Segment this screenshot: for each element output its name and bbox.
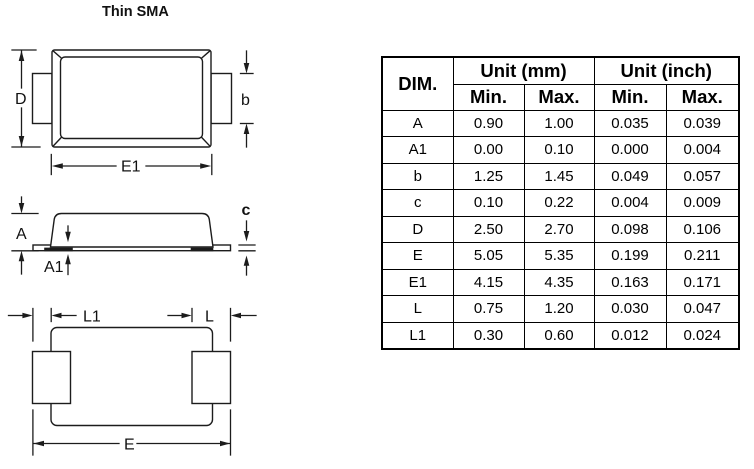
svg-text:A: A [16, 226, 27, 243]
svg-text:L1: L1 [83, 309, 101, 326]
svg-text:E1: E1 [121, 159, 141, 176]
svg-text:b: b [241, 92, 250, 109]
svg-text:E: E [124, 437, 135, 454]
svg-text:D: D [15, 91, 27, 108]
svg-text:L: L [205, 309, 214, 326]
svg-text:c: c [242, 202, 251, 219]
svg-text:A1: A1 [44, 259, 64, 276]
